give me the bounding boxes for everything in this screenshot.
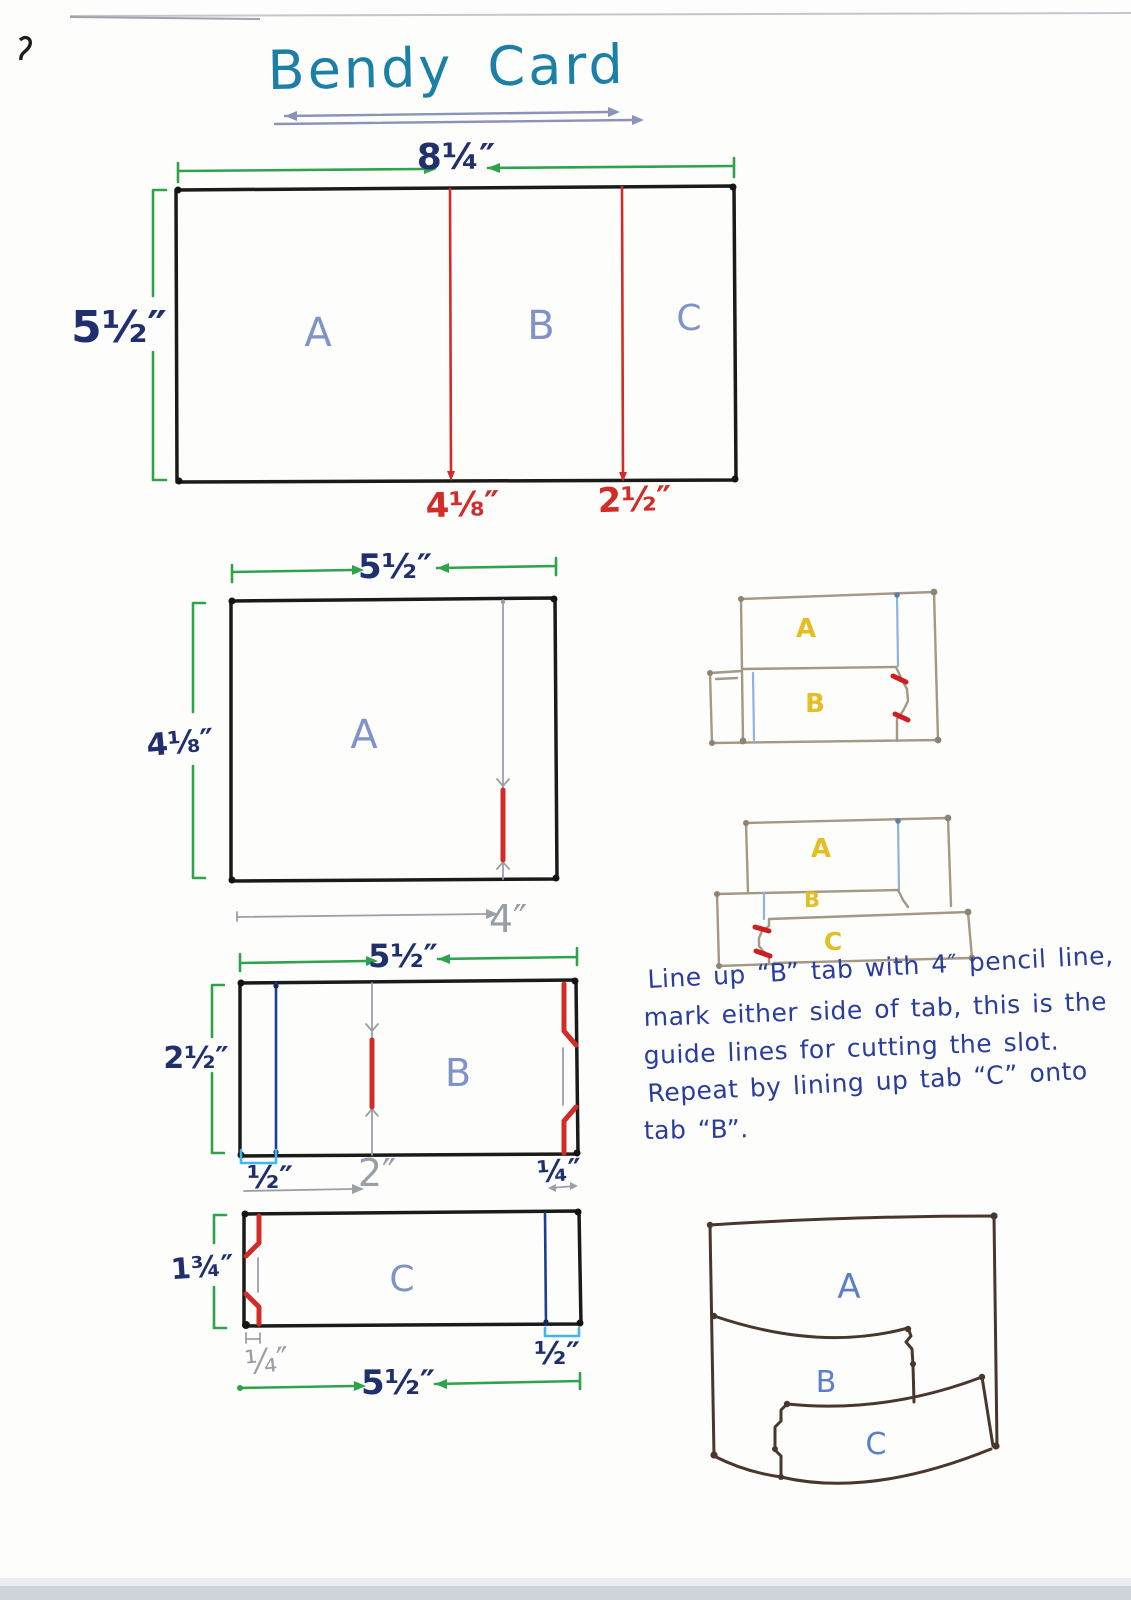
finished-card-sketch: A B C: [707, 1212, 1000, 1483]
title-underline-2: [275, 120, 632, 124]
corner-dot: [711, 1313, 717, 1319]
corner-dot: [577, 1320, 584, 1327]
corner-dot: [575, 1209, 582, 1216]
pencil-dot: [501, 600, 505, 604]
fold-line: [753, 673, 754, 740]
dim-line: [240, 954, 366, 971]
fold-line-dot: [273, 983, 278, 988]
dim-arrow: [437, 563, 449, 573]
fold-dot: [894, 592, 900, 598]
corner-dot: [714, 891, 720, 897]
dim-line: [232, 565, 352, 582]
corner-dot: [979, 1374, 985, 1380]
width-dimension-label: 5½″: [368, 937, 438, 975]
fold-line-half-inch: [545, 1213, 546, 1325]
corner-dot: [242, 1211, 249, 1218]
underline-arrow-1: [608, 107, 620, 117]
cut-mark-label-2: 2½″: [597, 479, 672, 522]
corner-dot: [740, 738, 747, 745]
underline-arrow-3: [285, 111, 297, 121]
card-left-edge: [710, 1225, 714, 1456]
corner-dot: [707, 670, 713, 676]
tab-cut-top: [564, 984, 576, 1045]
title-block: Bendy Card: [267, 33, 644, 125]
corner-dot: [551, 596, 558, 603]
corner-dot: [990, 1212, 997, 1219]
dim-line: [435, 1373, 580, 1389]
sheet-outline: [176, 186, 736, 482]
panel-c-diagram: C 1¾″ ¼″ ½″ 5½″: [170, 1209, 584, 1404]
panel-b-diagram: 5½″ B 2½″ ½″ 2″ ¼″: [163, 937, 582, 1196]
tab-cut-top: [246, 1216, 259, 1256]
flap-tick: [716, 678, 737, 679]
scan-bottom-shadow: [0, 1586, 1131, 1600]
note-line-2: mark either side of tab, this is the: [643, 987, 1107, 1032]
corner-dot: [784, 1401, 790, 1407]
scan-top-edge: [70, 13, 1131, 16]
panel-letter: A: [796, 614, 816, 644]
fold-width-bracket: [545, 1328, 579, 1336]
fold-line: [897, 594, 898, 666]
corner-dot: [732, 476, 739, 483]
assembly-sketch-ab: A B: [707, 589, 941, 746]
tab-mark-red: [756, 951, 770, 956]
tab-width-label: ¼″: [536, 1153, 583, 1191]
width-dimension-label: 5½″: [358, 547, 432, 587]
height-dimension-label: 2½″: [163, 1041, 228, 1076]
panel-letter: B: [445, 1051, 471, 1095]
tab-width-label: ¼″: [243, 1339, 291, 1382]
assembly-sketch-abc: A B C: [714, 815, 975, 969]
title-underline-1: [285, 112, 608, 116]
panel-letter: A: [837, 1267, 860, 1307]
corner-dot: [778, 1474, 784, 1480]
corner-dot: [572, 978, 579, 985]
panel-letter: B: [804, 888, 820, 912]
underline-arrow-2: [632, 115, 644, 125]
corner-dot: [707, 1222, 713, 1228]
panel-letter-a: A: [304, 310, 332, 356]
corner-dot: [229, 598, 236, 605]
scan-top-edge-dark: [70, 17, 260, 19]
corner-dot: [710, 1451, 717, 1458]
width-dimension-label: 5½″: [361, 1363, 435, 1403]
card-top-edge: [710, 1216, 994, 1225]
bendy-card-drawing: Bendy Card 8¼″ A B C 5½″ 4: [0, 0, 1131, 1600]
panel-a-left-edge: [742, 671, 743, 741]
panel-a-bottom-edge: [743, 667, 896, 669]
height-dimension-label: 4⅛″: [145, 722, 216, 764]
tab-mark-red: [893, 676, 906, 682]
band-c-right-edge: [982, 1377, 993, 1446]
card-right-edge: [994, 1216, 997, 1446]
panel-letter: B: [816, 1365, 837, 1400]
dim-line: [178, 169, 424, 171]
height-dimension-label: 5½″: [71, 302, 167, 353]
note-line-5: tab “B”.: [644, 1114, 749, 1145]
corner-dot: [935, 737, 942, 744]
corner-dot: [229, 877, 236, 884]
corner-dot: [175, 187, 182, 194]
corner-dot: [238, 980, 245, 987]
fold-dot: [895, 818, 901, 824]
corner-dot: [910, 1361, 916, 1367]
dim-line: [488, 166, 734, 168]
ink-squiggle-mark: [20, 38, 30, 60]
corner-dot: [772, 1446, 778, 1452]
width-dimension-label: 8¼″: [417, 137, 495, 178]
instruction-note: Line up “B” tab with 4″ pencil line, mar…: [643, 941, 1114, 1145]
scanned-instruction-page: Bendy Card 8¼″ A B C 5½″ 4: [0, 0, 1131, 1600]
panel-letter: A: [811, 834, 831, 864]
pencil-dim-line: [237, 912, 486, 921]
panel-letter: B: [805, 689, 825, 719]
corner-dot: [176, 478, 183, 485]
cut-line-4-1-8: [450, 189, 451, 474]
corner-dot: [730, 184, 737, 191]
corner-dot: [905, 1326, 911, 1332]
height-dimension-label: 1¾″: [170, 1248, 235, 1286]
corner-dot: [945, 815, 952, 822]
panel-a-left-edge: [746, 823, 748, 892]
tab-cut-bottom: [246, 1294, 259, 1324]
pencil-mark-label: 2″: [358, 1151, 396, 1195]
cut-mark-label-1: 4⅛″: [425, 484, 500, 527]
panel-b-outline: [240, 980, 578, 1156]
cut-plan-diagram: 8¼″ A B C 5½″ 4⅛″ 2½″: [71, 137, 738, 526]
corner-dot: [992, 1442, 999, 1449]
dim-line: [240, 1386, 354, 1388]
cut-line-2-1-2: [622, 187, 623, 475]
corner-dot: [965, 909, 972, 916]
corner-dot: [743, 820, 749, 826]
scan-bottom-shadow-soft: [0, 1578, 1131, 1587]
page-title: Bendy Card: [267, 33, 626, 102]
panel-letter-b: B: [527, 303, 554, 349]
dim-arrow: [438, 954, 450, 964]
fold-line: [898, 820, 899, 891]
corner-dot: [242, 1321, 250, 1329]
corner-dot: [709, 740, 715, 746]
panel-letter-c: C: [676, 298, 701, 339]
note-line-1: Line up “B” tab with 4″ pencil line,: [647, 941, 1114, 994]
band-b-bottom-curve: [714, 1456, 781, 1477]
panel-letter: C: [389, 1259, 414, 1300]
dim-line: [438, 948, 577, 965]
pencil-mark-label: 4″: [489, 897, 527, 941]
panel-letter: A: [350, 712, 378, 758]
panel-letter: C: [866, 1427, 887, 1462]
dim-line: [437, 558, 556, 575]
corner-dot: [931, 589, 938, 596]
band-b-top-curve: [714, 1316, 908, 1338]
panel-a-outline: [231, 598, 557, 881]
panel-a-diagram: 5½″ A 4⅛″ 4″: [145, 547, 560, 941]
dim-arrow: [435, 1379, 447, 1389]
panel-letter: C: [824, 927, 842, 956]
fold-line-dot: [543, 1319, 548, 1324]
fold-width-label: ½″: [534, 1336, 580, 1372]
corner-dot: [738, 596, 744, 602]
tab-cut-bottom: [564, 1107, 576, 1153]
corner-dot: [553, 875, 560, 882]
band-c-tab: [775, 1404, 787, 1477]
